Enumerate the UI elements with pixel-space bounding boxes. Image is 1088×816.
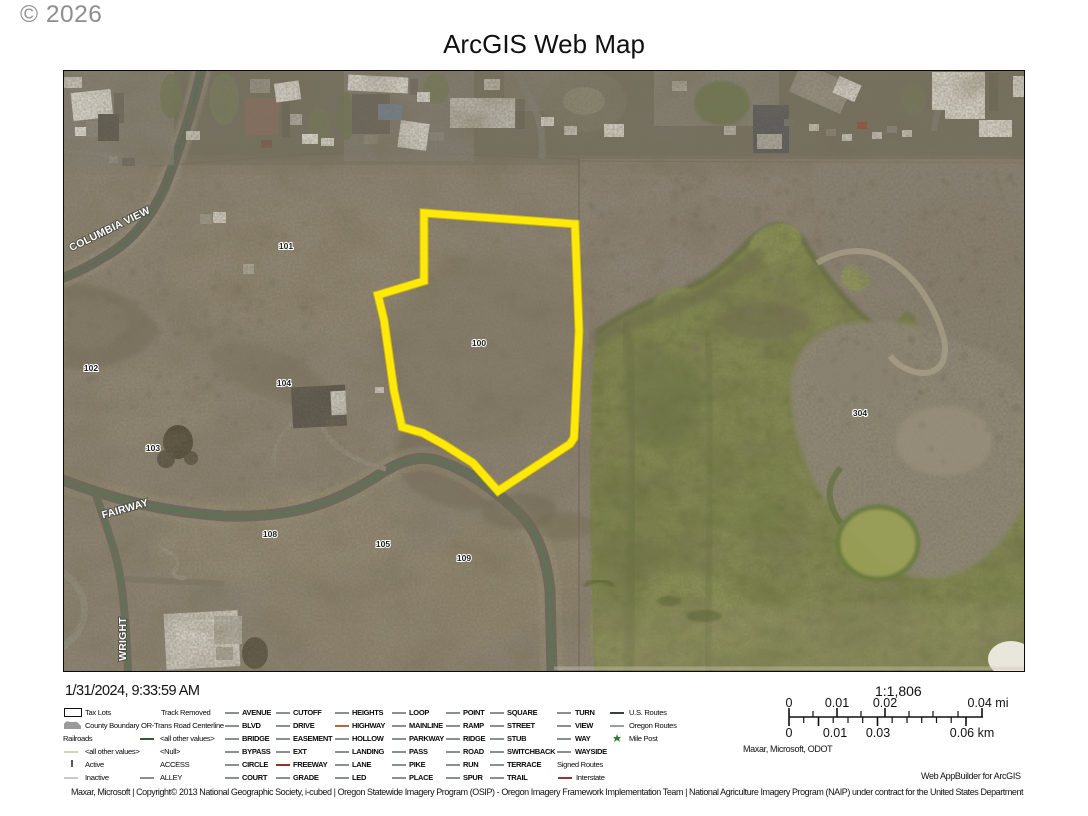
svg-text:0.01: 0.01 <box>823 726 847 740</box>
svg-text:0.02: 0.02 <box>873 696 897 710</box>
svg-text:101: 101 <box>279 241 293 251</box>
svg-text:100: 100 <box>472 338 486 348</box>
svg-text:102: 102 <box>84 363 98 373</box>
svg-text:0.04 mi: 0.04 mi <box>968 696 1009 710</box>
svg-text:0.03: 0.03 <box>866 726 890 740</box>
svg-text:WRIGHT: WRIGHT <box>117 617 129 661</box>
svg-text:103: 103 <box>146 443 160 453</box>
svg-text:104: 104 <box>277 378 291 388</box>
svg-text:0.01: 0.01 <box>825 696 849 710</box>
svg-text:105: 105 <box>376 539 390 549</box>
svg-text:304: 304 <box>853 408 867 418</box>
svg-text:108: 108 <box>263 529 277 539</box>
svg-text:0: 0 <box>786 696 793 710</box>
svg-text:109: 109 <box>457 553 471 563</box>
svg-text:0: 0 <box>786 726 793 740</box>
svg-text:0.06 km: 0.06 km <box>950 726 994 740</box>
